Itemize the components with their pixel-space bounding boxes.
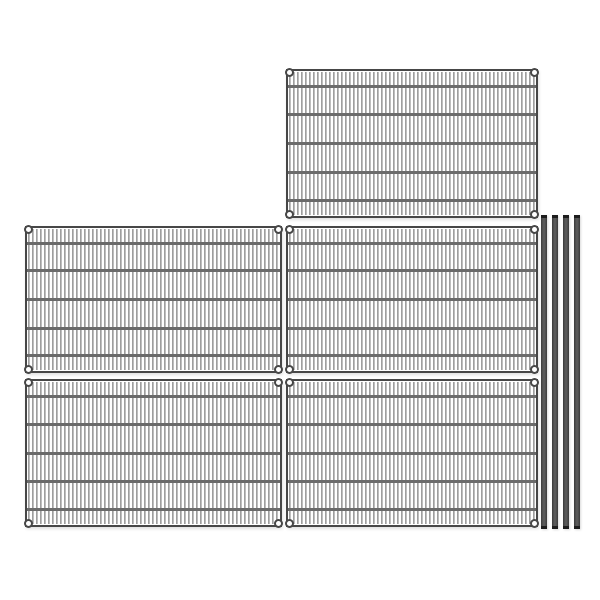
horizontal-support-wire (288, 327, 536, 330)
horizontal-support-wire (288, 354, 536, 357)
post-end-cap (552, 215, 558, 218)
post-end-cap (541, 526, 547, 529)
horizontal-support-wire (27, 452, 280, 455)
post-end-cap (541, 215, 547, 218)
shelf-post (552, 215, 558, 529)
corner-collar-ring (285, 68, 294, 77)
horizontal-support-wire (27, 395, 280, 398)
horizontal-support-wire (27, 298, 280, 301)
horizontal-support-wire (288, 480, 536, 483)
corner-collar-ring (530, 519, 539, 528)
corner-collar-ring (530, 365, 539, 374)
wire-shelf-panel-middle-left (25, 226, 282, 373)
corner-collar-ring (274, 225, 283, 234)
corner-collar-ring (530, 378, 539, 387)
corner-collar-ring (530, 225, 539, 234)
wire-shelving-product-photo (0, 0, 600, 600)
shelf-post (541, 215, 547, 529)
corner-collar-ring (274, 365, 283, 374)
corner-collar-ring (285, 210, 294, 219)
post-end-cap (574, 215, 580, 218)
corner-collar-ring (274, 378, 283, 387)
wire-shelf-panel-top (286, 69, 538, 218)
corner-collar-ring (285, 225, 294, 234)
horizontal-support-wire (288, 395, 536, 398)
corner-collar-ring (530, 68, 539, 77)
horizontal-support-wire (288, 269, 536, 272)
horizontal-support-wire (27, 269, 280, 272)
wire-shelf-panel-bottom-right (286, 379, 538, 527)
corner-collar-ring (24, 519, 33, 528)
corner-collar-ring (285, 378, 294, 387)
horizontal-support-wire (27, 327, 280, 330)
shelf-post (563, 215, 569, 529)
horizontal-support-wire (27, 508, 280, 511)
post-end-cap (574, 526, 580, 529)
horizontal-support-wire (288, 85, 536, 88)
post-end-cap (563, 215, 569, 218)
corner-collar-ring (285, 365, 294, 374)
horizontal-support-wire (288, 452, 536, 455)
horizontal-support-wire (27, 354, 280, 357)
corner-collar-ring (24, 365, 33, 374)
post-end-cap (552, 526, 558, 529)
horizontal-support-wire (288, 423, 536, 426)
corner-collar-ring (285, 519, 294, 528)
horizontal-support-wire (288, 298, 536, 301)
horizontal-support-wire (288, 508, 536, 511)
corner-collar-ring (274, 519, 283, 528)
horizontal-support-wire (288, 242, 536, 245)
horizontal-support-wire (27, 423, 280, 426)
corner-collar-ring (24, 378, 33, 387)
horizontal-support-wire (27, 480, 280, 483)
wire-shelf-panel-bottom-left (25, 379, 282, 527)
horizontal-support-wire (288, 171, 536, 174)
wire-shelf-panel-middle-right (286, 226, 538, 373)
post-end-cap (563, 526, 569, 529)
shelf-post (574, 215, 580, 529)
horizontal-support-wire (288, 113, 536, 116)
corner-collar-ring (24, 225, 33, 234)
horizontal-support-wire (288, 199, 536, 202)
horizontal-support-wire (27, 242, 280, 245)
corner-collar-ring (530, 210, 539, 219)
horizontal-support-wire (288, 142, 536, 145)
